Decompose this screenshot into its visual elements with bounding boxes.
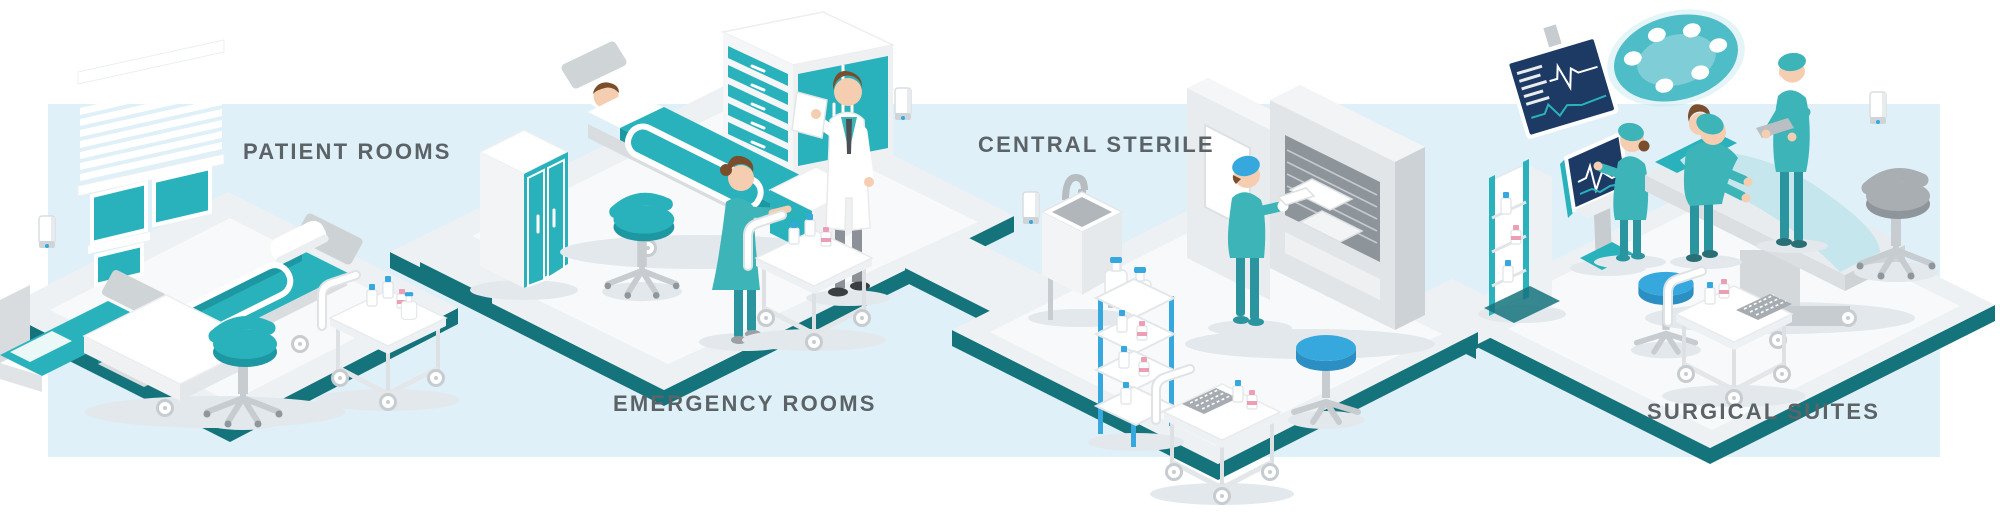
hand-sanitizer-dispenser xyxy=(39,216,55,248)
hand-sanitizer-dispenser xyxy=(1870,92,1886,124)
surgical-suites-label: SURGICAL SUITES xyxy=(1647,399,1880,424)
central-sterile-label: CENTRAL STERILE xyxy=(978,132,1215,157)
emergency-rooms-label: EMERGENCY ROOMS xyxy=(613,391,877,416)
hand-sanitizer-dispenser xyxy=(895,88,911,120)
surgical-lamp xyxy=(1597,0,1756,121)
hospital-workflow-illustration: PATIENT ROOMS EMERGENCY ROOMS CENTRAL ST… xyxy=(0,0,2000,517)
soap-dispenser xyxy=(1023,192,1039,224)
patient-rooms-label: PATIENT ROOMS xyxy=(243,139,452,164)
